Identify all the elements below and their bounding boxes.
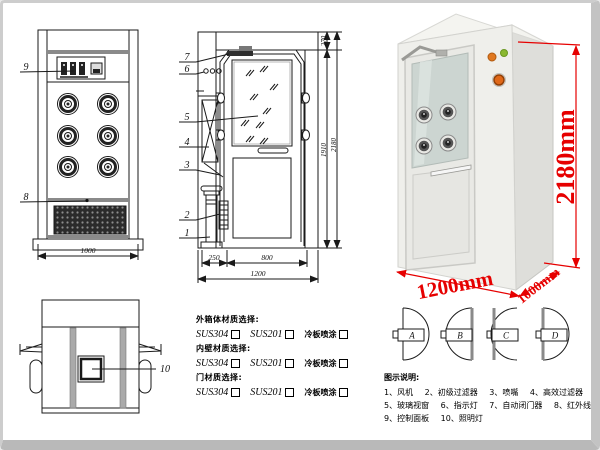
- door-material-heading: 门材质选择:: [196, 372, 364, 383]
- callout-1: 1: [185, 228, 190, 239]
- inner-material-options: SUS304 SUS201 冷板喷涂: [196, 358, 364, 369]
- outer-material-options: SUS304 SUS201 冷板喷涂: [196, 329, 364, 340]
- option-coldplate: 冷板喷涂: [304, 387, 336, 398]
- checkbox-coldplate[interactable]: [339, 359, 348, 368]
- door-config-diagrams: A B C D: [393, 308, 569, 360]
- return-air-grille: [54, 206, 126, 234]
- callout-6: 6: [185, 64, 190, 75]
- checkbox-sus304[interactable]: [231, 359, 240, 368]
- option-sus201: SUS201: [250, 387, 282, 398]
- legend-item-fan: 1、风机: [384, 388, 413, 397]
- config-letter-c: C: [503, 331, 510, 341]
- config-letter-d: D: [551, 331, 559, 341]
- cabinet-side-face: [512, 25, 553, 290]
- callout-9-control-panel: 9: [24, 62, 29, 73]
- legend-item-lamp: 10、照明灯: [441, 414, 483, 423]
- option-coldplate: 冷板喷涂: [304, 329, 336, 340]
- legend-row-2: 5、玻璃视窗 6、指示灯 7、自动闭门器 8、红外线感应器: [384, 399, 596, 412]
- legend: 图示说明: 1、风机 2、初级过滤器 3、喷嘴 4、高效过滤器 5、玻璃视窗 6…: [384, 372, 596, 425]
- door-config-b: B: [441, 308, 472, 360]
- dim-800: 800: [261, 253, 273, 262]
- legend-item-nozzle: 3、喷嘴: [489, 388, 518, 397]
- callout-2: 2: [185, 210, 190, 221]
- door-config-a: A: [393, 308, 429, 360]
- checkbox-sus201[interactable]: [285, 330, 294, 339]
- emergency-button: [494, 75, 504, 85]
- outer-material-heading: 外箱体材质选择:: [196, 314, 364, 325]
- dim-270: 270: [320, 35, 328, 46]
- legend-item-hepa-filter: 4、高效过滤器: [530, 388, 583, 397]
- side-bottom-dimensions: 250 800 1200: [198, 250, 318, 283]
- checkbox-sus304[interactable]: [231, 388, 240, 397]
- wall-strip-left: [70, 328, 76, 408]
- callout-7: 7: [185, 52, 191, 63]
- legend-item-ir-sensor: 8、红外线感应器: [554, 401, 600, 410]
- dim-250: 250: [208, 253, 220, 262]
- front-width-dimension: 1000: [81, 246, 96, 255]
- option-sus304: SUS304: [196, 387, 228, 398]
- checkbox-sus201[interactable]: [285, 388, 294, 397]
- green-indicator-light: [501, 50, 508, 57]
- option-sus304: SUS304: [196, 329, 228, 340]
- material-selection-form: 外箱体材质选择: SUS304 SUS201 冷板喷涂 内壁材质选择: SUS3…: [196, 311, 364, 401]
- option-coldplate: 冷板喷涂: [304, 358, 336, 369]
- primary-filter: [219, 201, 228, 229]
- inner-material-heading: 内壁材质选择:: [196, 343, 364, 354]
- callout-8-grille: 8: [24, 192, 29, 203]
- air-shower-spec-sheet: 1000 9 8: [0, 0, 600, 450]
- legend-row-3: 9、控制面板 10、照明灯: [384, 412, 596, 425]
- wall-strip-right: [120, 328, 126, 408]
- photo-height-label: 2180mm: [551, 109, 580, 205]
- option-sus201: SUS201: [250, 329, 282, 340]
- dim-1200: 1200: [251, 269, 266, 278]
- callout-4: 4: [185, 137, 190, 148]
- side-view-drawing: 7 6 5 4 3 2 1: [179, 32, 342, 283]
- config-letter-a: A: [408, 331, 415, 341]
- checkbox-coldplate[interactable]: [339, 388, 348, 397]
- checkbox-sus201[interactable]: [285, 359, 294, 368]
- orange-indicator-light: [488, 53, 496, 61]
- front-view-drawing: 1000 9 8: [20, 30, 143, 260]
- door-material-options: SUS304 SUS201 冷板喷涂: [196, 387, 364, 398]
- dim-2180: 2180: [330, 138, 338, 153]
- legend-item-door-closer: 7、自动闭门器: [489, 401, 542, 410]
- legend-item-glass-window: 5、玻璃视窗: [384, 401, 429, 410]
- door-config-c: C: [487, 308, 518, 360]
- callout-3: 3: [184, 160, 190, 171]
- legend-row-1: 1、风机 2、初级过滤器 3、喷嘴 4、高效过滤器: [384, 386, 596, 399]
- top-view-drawing: 10: [20, 300, 170, 413]
- legend-item-indicator-light: 6、指示灯: [441, 401, 478, 410]
- door-closer: [227, 51, 253, 56]
- door-config-d: D: [536, 308, 569, 360]
- option-sus304: SUS304: [196, 358, 228, 369]
- legend-title: 图示说明:: [384, 372, 596, 383]
- legend-item-control-panel: 9、控制面板: [384, 414, 429, 423]
- product-photo: 2180mm 1200mm 1000mm: [397, 14, 580, 307]
- legend-item-primary-filter: 2、初级过滤器: [425, 388, 478, 397]
- dim-1910: 1910: [320, 143, 328, 158]
- option-sus201: SUS201: [250, 358, 282, 369]
- callout-10-lamp: 10: [160, 364, 170, 375]
- checkbox-coldplate[interactable]: [339, 330, 348, 339]
- top-accent-bar: [47, 50, 129, 54]
- config-letter-b: B: [457, 331, 463, 341]
- callout-5: 5: [185, 112, 190, 123]
- checkbox-sus304[interactable]: [231, 330, 240, 339]
- control-panel: [57, 57, 105, 79]
- photo-door-lower-panel: [413, 168, 469, 259]
